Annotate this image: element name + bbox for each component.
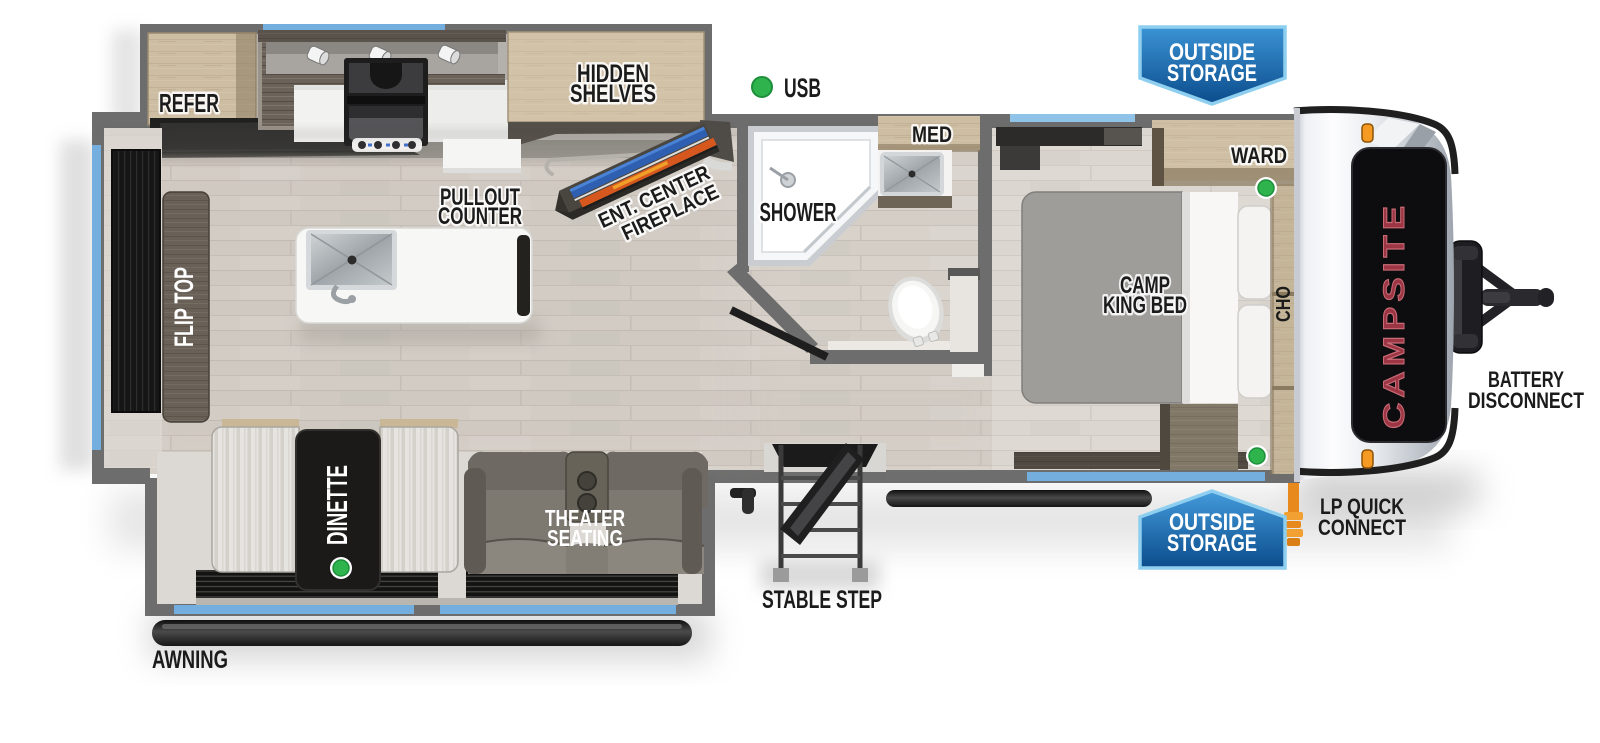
svg-text:CAMPSITE: CAMPSITE	[1378, 201, 1411, 429]
svg-text:FLIP TOP: FLIP TOP	[169, 267, 199, 347]
svg-text:CHO: CHO	[1273, 286, 1295, 322]
svg-text:USB: USB	[784, 73, 821, 103]
svg-text:COUNTER: COUNTER	[438, 203, 522, 230]
svg-text:STORAGE: STORAGE	[1167, 60, 1257, 87]
svg-text:SEATING: SEATING	[547, 525, 623, 551]
svg-text:STORAGE: STORAGE	[1167, 530, 1257, 557]
svg-text:DINETTE: DINETTE	[322, 465, 354, 545]
svg-text:SHOWER: SHOWER	[760, 197, 837, 227]
svg-text:SHELVES: SHELVES	[570, 80, 656, 108]
svg-text:DISCONNECT: DISCONNECT	[1468, 388, 1584, 413]
svg-text:KING BED: KING BED	[1103, 292, 1187, 319]
svg-text:MED: MED	[912, 122, 952, 147]
svg-text:CONNECT: CONNECT	[1318, 515, 1406, 540]
svg-text:WARD: WARD	[1231, 143, 1287, 168]
svg-text:REFER: REFER	[159, 88, 219, 118]
svg-text:STABLE STEP: STABLE STEP	[762, 586, 882, 614]
svg-text:AWNING: AWNING	[152, 646, 228, 674]
